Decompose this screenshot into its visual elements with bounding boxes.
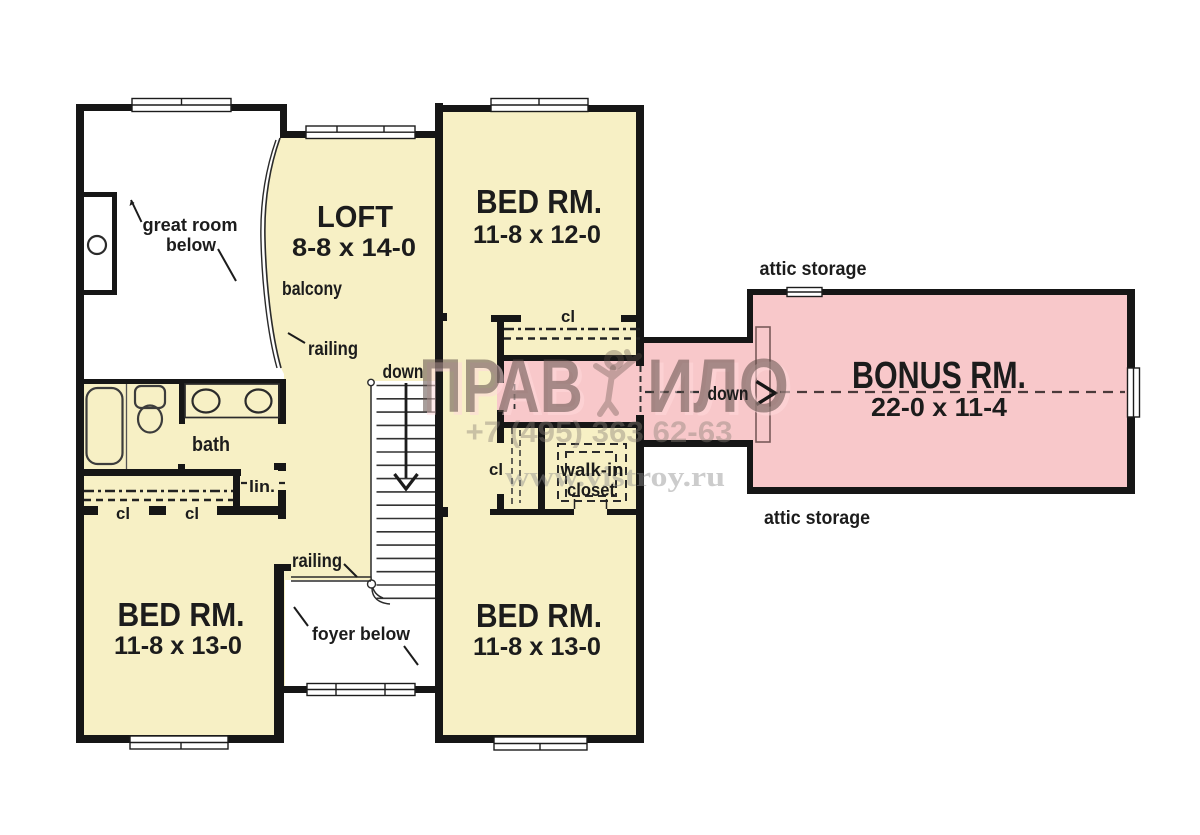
svg-text:+7 (495) 363 62-63: +7 (495) 363 62-63 — [466, 416, 733, 449]
svg-text:closet: closet — [567, 480, 615, 500]
svg-text:railing: railing — [308, 339, 358, 360]
svg-text:cl: cl — [116, 504, 130, 523]
svg-text:cl: cl — [185, 504, 199, 523]
svg-text:BED RM.: BED RM. — [476, 597, 602, 634]
svg-text:down: down — [383, 362, 424, 383]
svg-text:down: down — [708, 384, 749, 405]
svg-text:11-8 x 13-0: 11-8 x 13-0 — [473, 633, 601, 661]
svg-text:8-8 x 14-0: 8-8 x 14-0 — [292, 234, 416, 262]
svg-text:BED RM.: BED RM. — [476, 183, 602, 220]
svg-text:attic storage: attic storage — [764, 508, 870, 529]
svg-text:lin.: lin. — [249, 477, 275, 496]
svg-text:cl: cl — [489, 460, 503, 479]
svg-text:LOFT: LOFT — [317, 199, 393, 234]
svg-text:11-8 x 12-0: 11-8 x 12-0 — [473, 221, 601, 249]
svg-text:below: below — [166, 235, 217, 255]
svg-text:railing: railing — [292, 551, 342, 572]
svg-text:BONUS RM.: BONUS RM. — [852, 355, 1026, 397]
svg-text:great room: great room — [143, 215, 238, 235]
svg-text:balcony: balcony — [282, 279, 342, 300]
svg-text:attic storage: attic storage — [760, 259, 867, 280]
svg-text:BED RM.: BED RM. — [118, 596, 245, 633]
svg-text:cl: cl — [561, 307, 575, 326]
svg-text:walk-in: walk-in — [559, 460, 623, 480]
svg-text:foyer below: foyer below — [312, 624, 411, 644]
svg-text:22-0 x 11-4: 22-0 x 11-4 — [871, 392, 1008, 422]
svg-text:11-8 x 13-0: 11-8 x 13-0 — [114, 632, 242, 660]
svg-text:bath: bath — [192, 434, 230, 456]
